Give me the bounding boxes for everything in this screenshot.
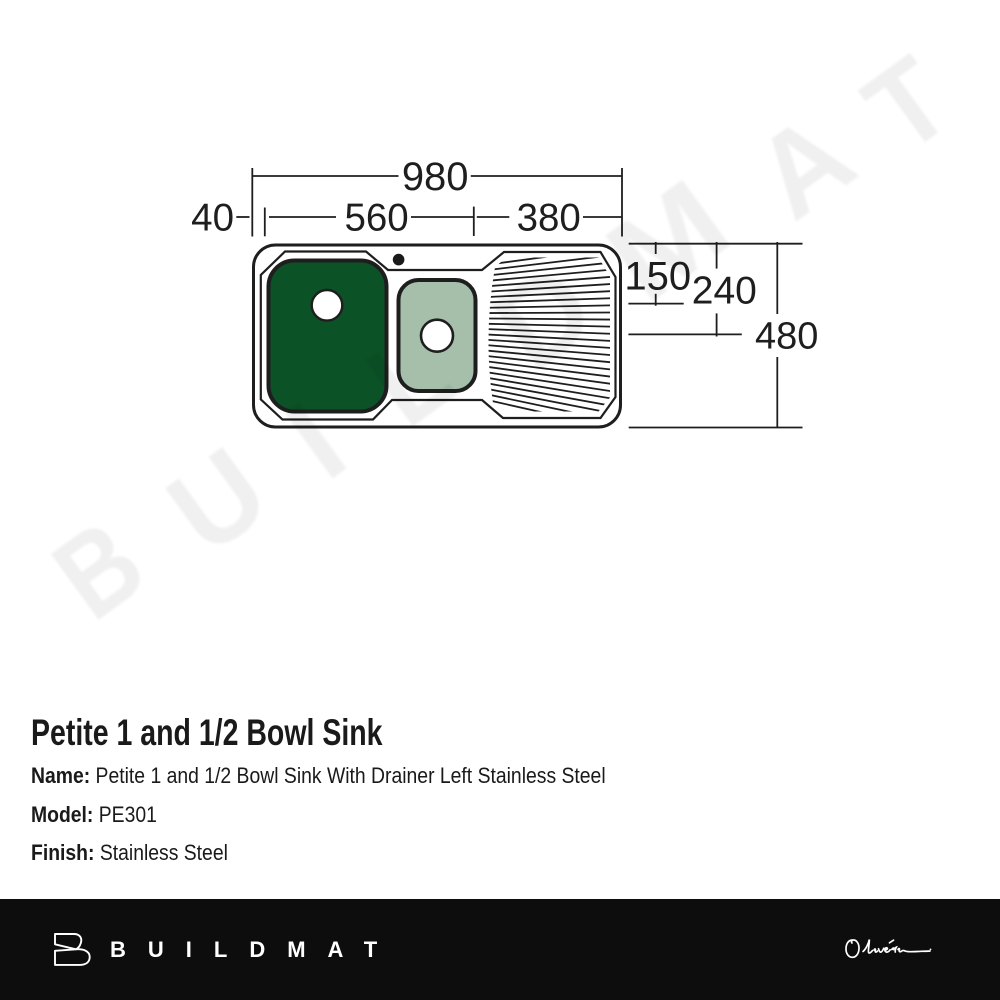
svg-text:40: 40 [191,197,234,240]
svg-text:380: 380 [517,197,581,240]
svg-text:480: 480 [755,316,818,358]
svg-text:980: 980 [402,155,469,199]
svg-text:560: 560 [344,197,408,240]
